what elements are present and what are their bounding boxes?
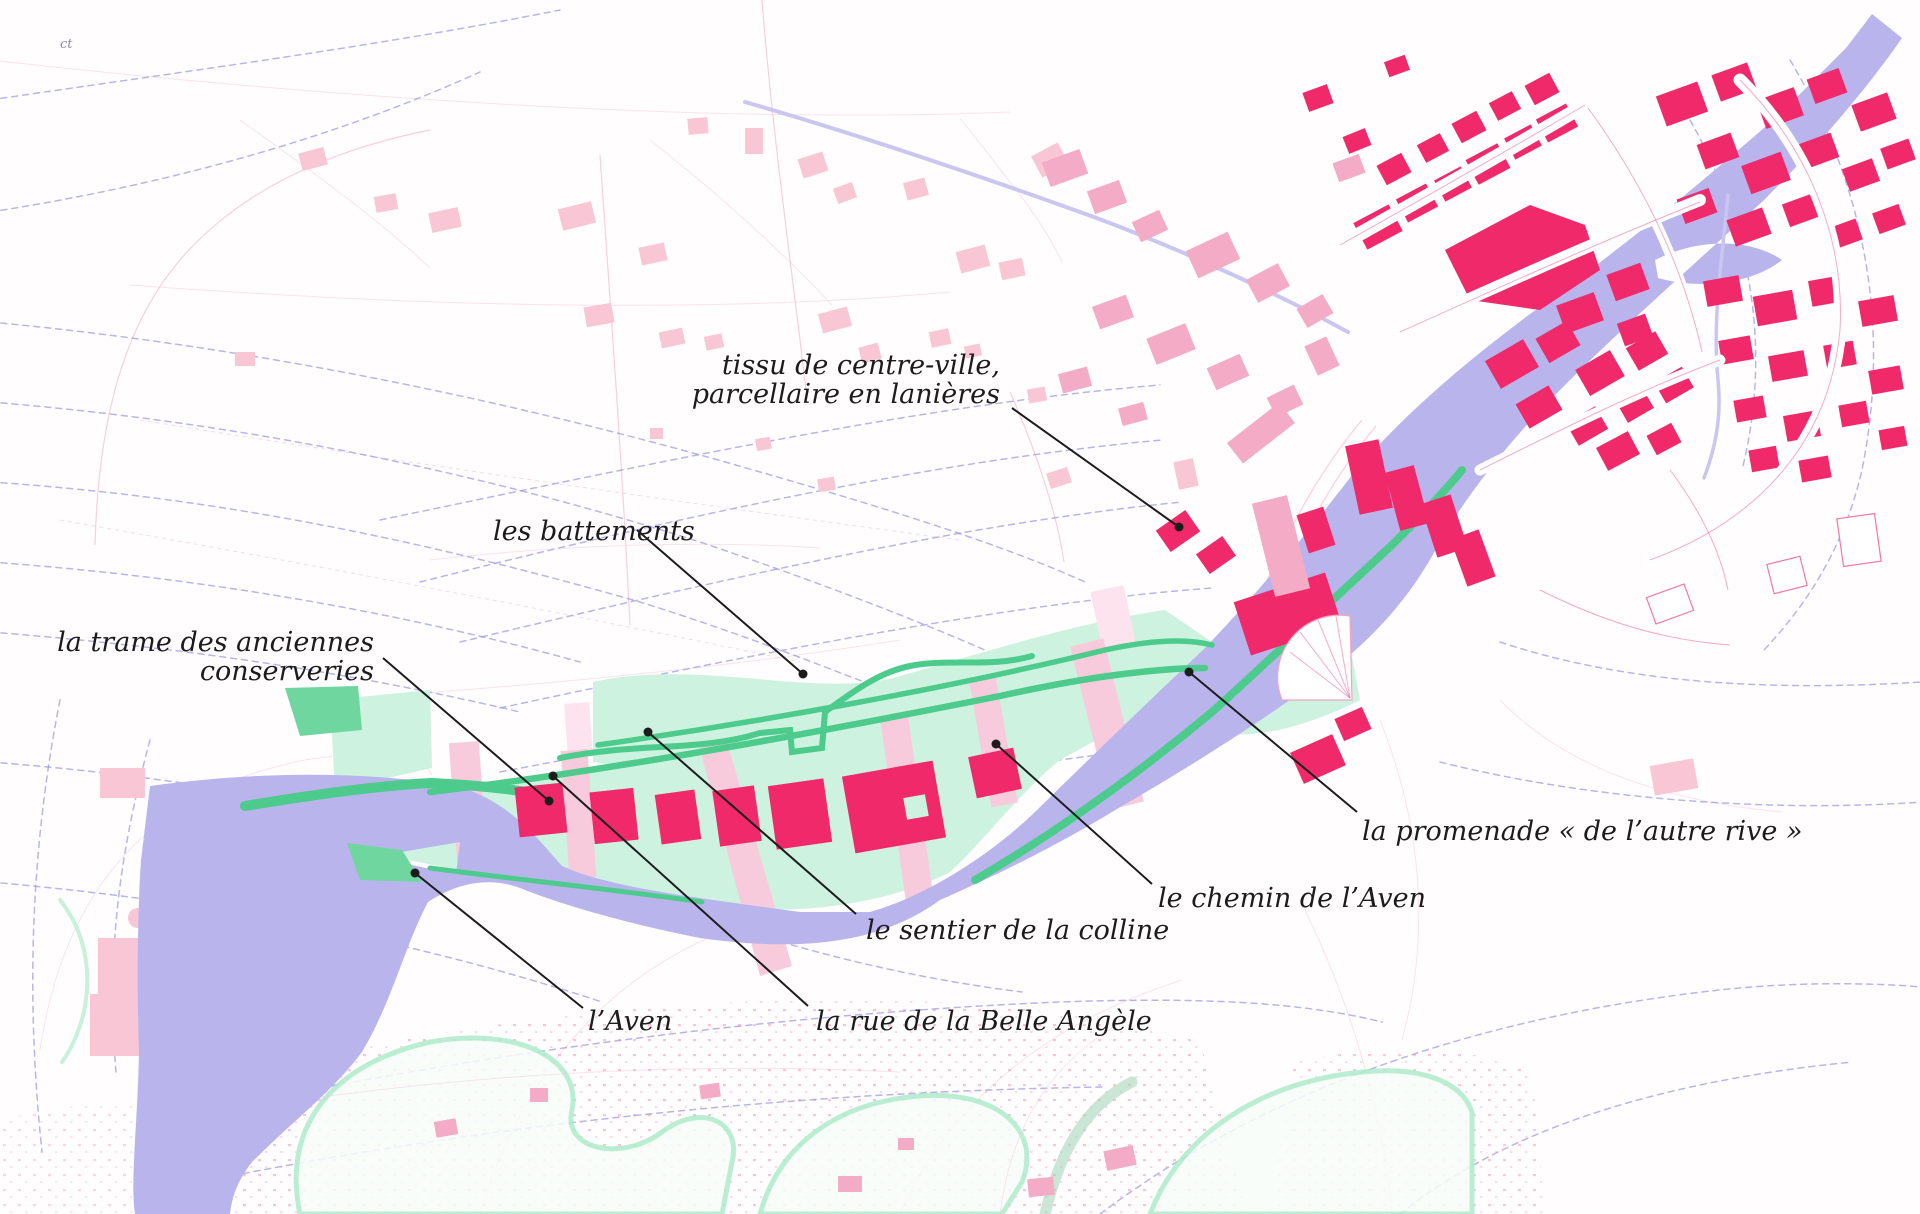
label-tissu-line2: parcellaire en lanières xyxy=(692,379,1000,410)
label-chemin: le chemin de l’Aven xyxy=(1158,883,1426,914)
label-sentier: le sentier de la colline xyxy=(866,915,1169,946)
leader-battements xyxy=(637,530,808,679)
corner-mark: ct xyxy=(60,37,73,52)
map-stage: ct tissu de centre-ville, parcellaire en… xyxy=(0,0,1920,1214)
map-canvas: ct tissu de centre-ville, parcellaire en… xyxy=(0,0,1920,1214)
town-buildings xyxy=(1042,55,1916,645)
label-rue: la rue de la Belle Angèle xyxy=(816,1006,1152,1037)
label-trame-line1: la trame des anciennes xyxy=(57,627,374,658)
leader-tissu xyxy=(1012,408,1184,532)
label-promenade: la promenade « de l’autre rive » xyxy=(1362,816,1803,847)
label-trame-line2: conserveries xyxy=(200,656,374,687)
label-battements: les battements xyxy=(493,516,695,547)
label-tissu-line1: tissu de centre-ville, xyxy=(722,350,1000,381)
estuary-green-patch xyxy=(285,686,362,736)
label-aven: l’Aven xyxy=(588,1006,672,1037)
